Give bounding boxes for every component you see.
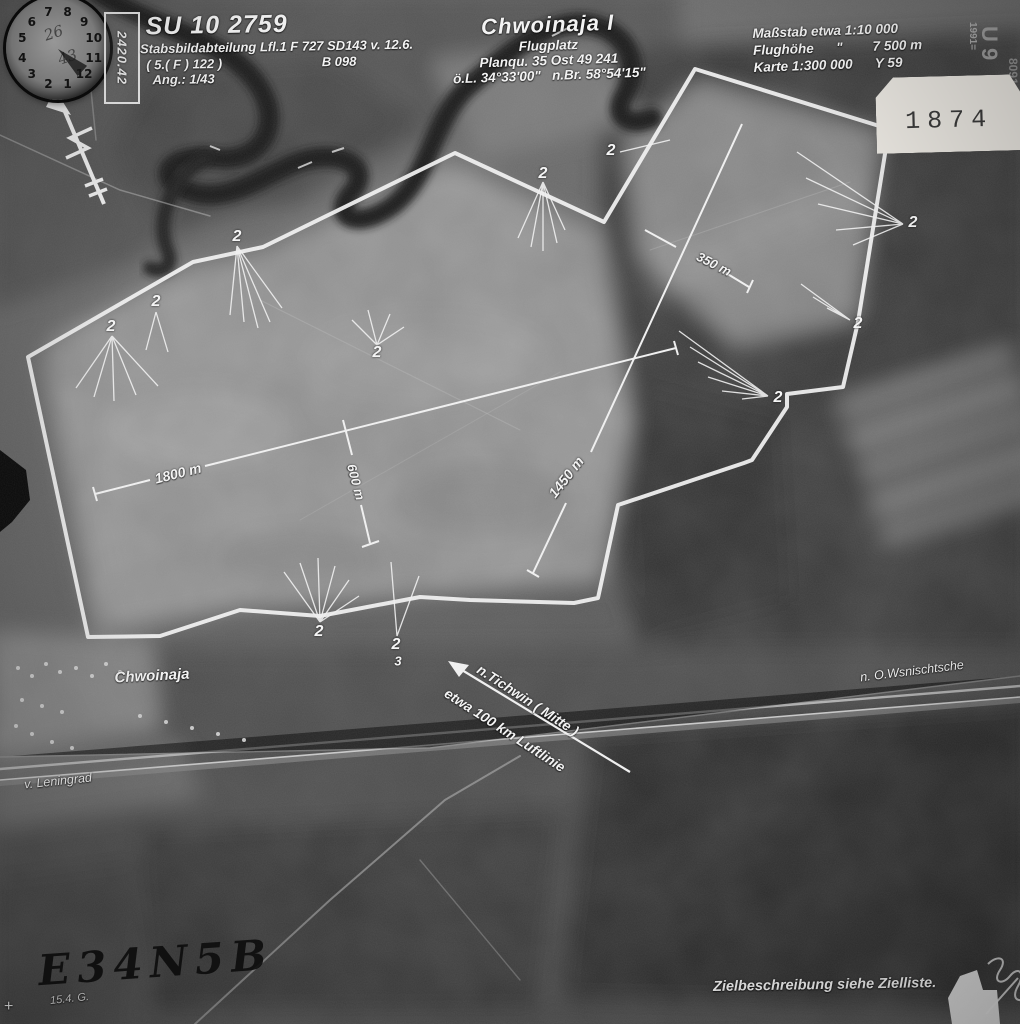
callout-2: 2 <box>854 315 863 333</box>
photo-id: SU 10 2759 <box>145 8 413 42</box>
header-center: Chwoinaja I Flugplatz Planqu. 35 Ost 49 … <box>451 9 646 87</box>
altimeter-clock: 123456789101112 26 43 <box>6 0 110 100</box>
callout-2: 2 <box>392 636 401 654</box>
callout-2: 2 <box>315 623 324 641</box>
header-left: SU 10 2759 Stabsbildabteilung Lfl.1 F 72… <box>145 8 413 88</box>
archive-stamp: 1874 <box>875 74 1020 154</box>
film-number: B 098 <box>322 53 357 69</box>
aerial-photo: 123456789101112 26 43 2420.42 SU 10 2759… <box>0 0 1020 1024</box>
callout-2: 2 <box>152 293 161 311</box>
corner-cross-mark: + <box>4 998 13 1016</box>
header-right: Maßstab etwa 1:10 000 Flughöhe " 7 500 m… <box>752 19 923 76</box>
callout-2: 2 <box>373 344 382 362</box>
callout-2: 2 <box>774 389 783 407</box>
callout-3: 3 <box>394 654 401 669</box>
mission-number: 2420.42 <box>115 31 130 85</box>
callout-2: 2 <box>233 228 242 246</box>
squadron: ( 5.( F ) 122 ) <box>146 56 222 72</box>
callout-2: 2 <box>539 165 548 183</box>
archive-number: 1874 <box>904 92 993 135</box>
film-edge-mark: U 9 <box>976 26 1002 60</box>
callout-2: 2 <box>909 214 918 232</box>
clock-handwritten-note: 26 <box>42 21 66 44</box>
callout-2: 2 <box>107 318 116 336</box>
mission-number-box: 2420.42 <box>104 12 140 104</box>
annotation-overlay <box>0 0 1020 1024</box>
callout-2: 2 <box>607 142 616 160</box>
